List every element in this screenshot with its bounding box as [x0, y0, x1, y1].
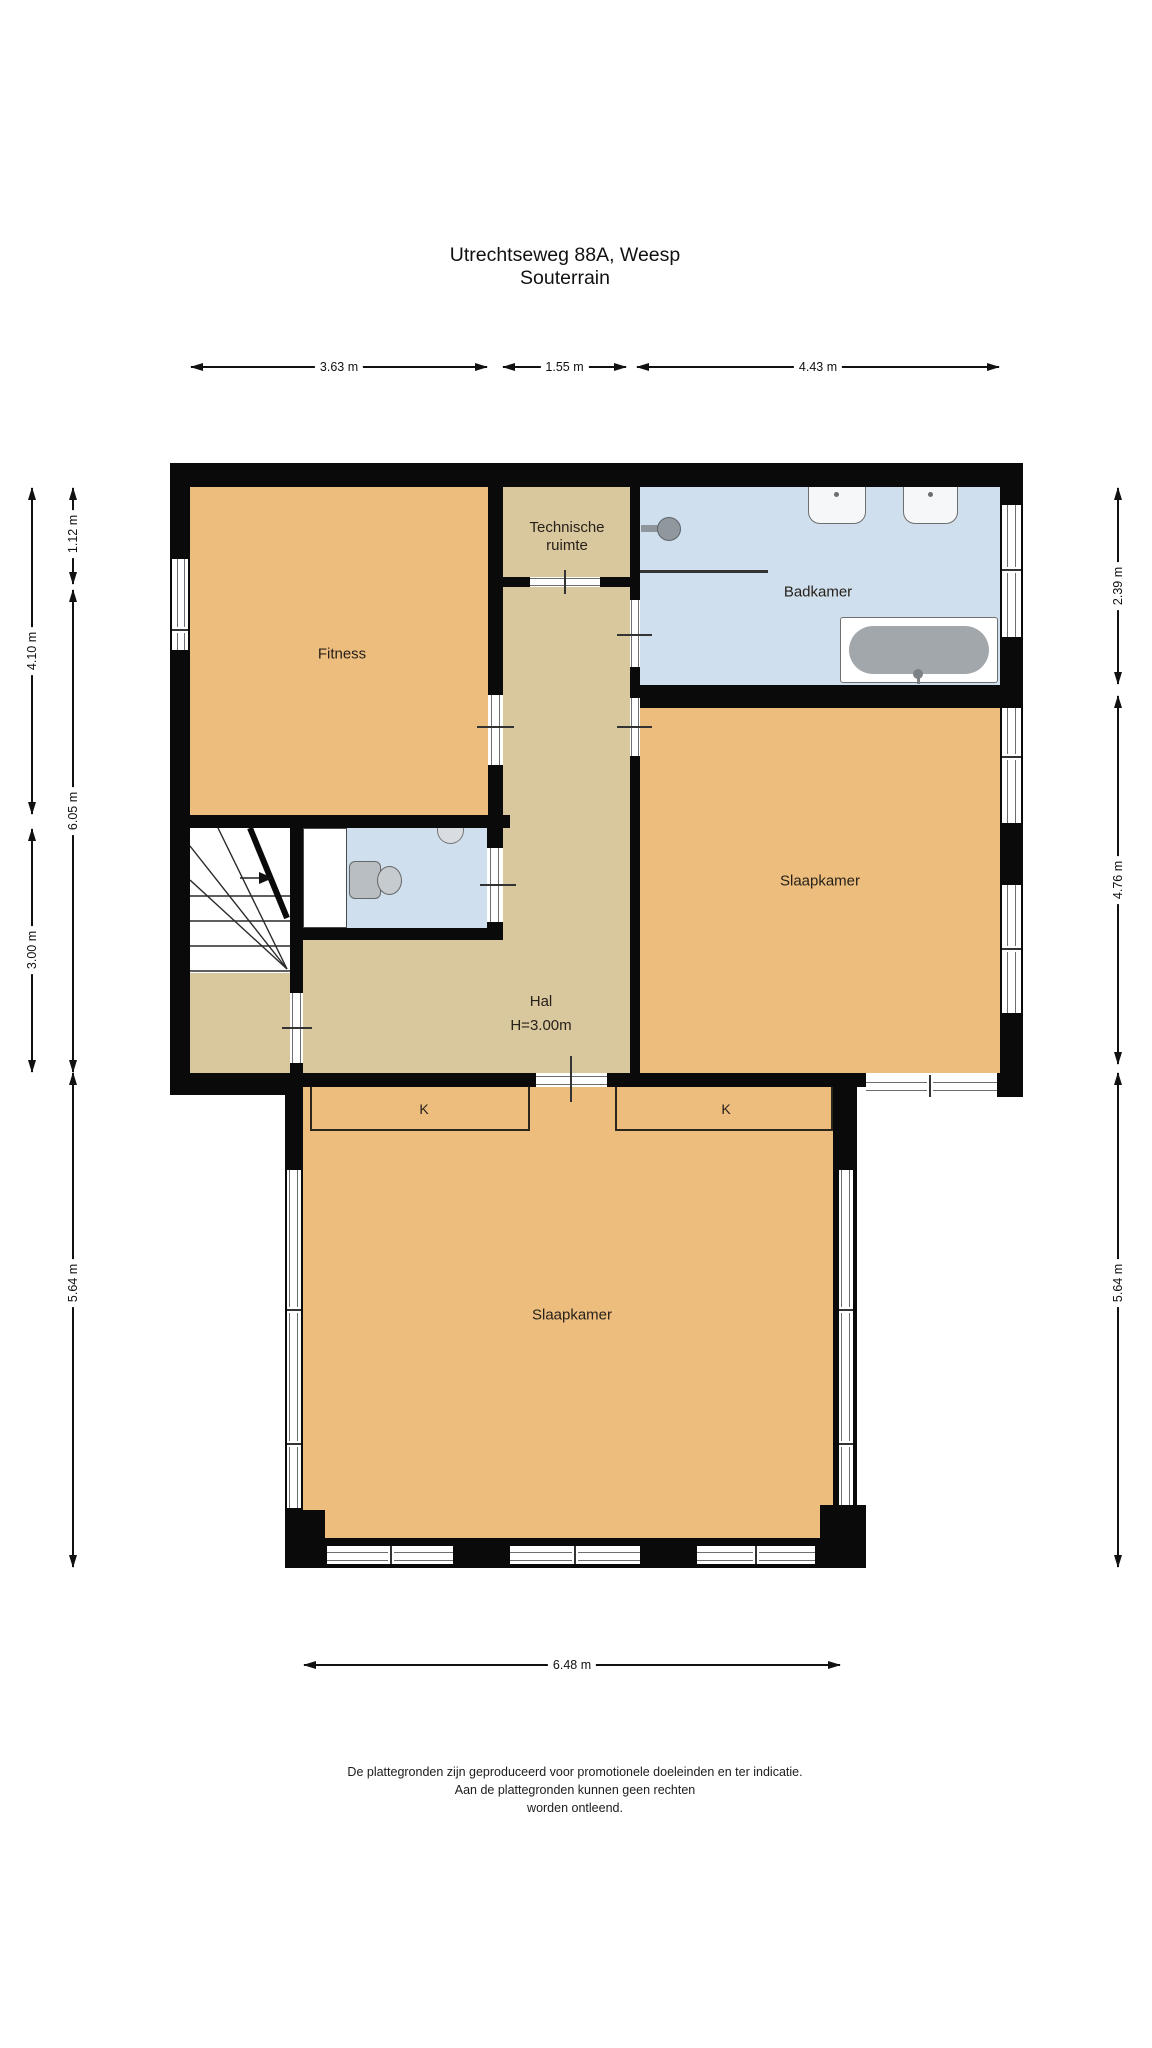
door-tick: [570, 1056, 572, 1102]
window-divider: [287, 1441, 301, 1447]
room-hal-lower: [303, 940, 630, 1073]
floorplan: Utrechtseweg 88A, Weesp Souterrain: [0, 0, 1152, 2048]
dimension-left-inner-1: 1.12 m: [66, 487, 80, 585]
window-divider: [753, 1546, 759, 1564]
room-label-fitness: Fitness: [318, 646, 366, 663]
room-label-technische-ruimte: Technische ruimte: [529, 519, 604, 555]
dimension-value: 5.64 m: [66, 1259, 80, 1307]
wall: [170, 1073, 303, 1095]
disclaimer: De plattegronden zijn geproduceerd voor …: [347, 1763, 802, 1817]
dimension-top-1: 3.63 m: [190, 360, 488, 374]
door-tick: [480, 884, 516, 886]
dimension-value: 5.64 m: [1111, 1259, 1125, 1307]
dimension-top-2: 1.55 m: [502, 360, 627, 374]
window-divider: [572, 1546, 578, 1564]
dimension-right-1: 2.39 m: [1111, 487, 1125, 685]
closet-label-left: K: [419, 1101, 428, 1117]
dimension-left-outer-1: 4.10 m: [25, 487, 39, 815]
window-glass: [289, 1170, 298, 1508]
wall: [303, 928, 498, 940]
dimension-bottom-1: 6.48 m: [303, 1658, 841, 1672]
dimension-value: 4.10 m: [25, 627, 39, 675]
dimension-left-outer-2: 3.00 m: [25, 828, 39, 1073]
room-slaapkamer-boven: [640, 708, 1000, 1073]
window-divider: [839, 1307, 853, 1313]
wall: [640, 685, 1023, 708]
door-tick: [617, 726, 652, 728]
faucet-icon: [834, 492, 839, 497]
dimension-left-inner-2: 6.05 m: [66, 589, 80, 1073]
shower-partition: [640, 570, 768, 573]
bathtub-basin: [849, 626, 989, 674]
wall: [630, 487, 640, 1073]
stairs-icon: [190, 828, 290, 973]
floor-subtitle: Souterrain: [450, 267, 681, 290]
disclaimer-line: Aan de plattegronden kunnen geen rechten: [347, 1781, 802, 1799]
room-label-line: ruimte: [546, 537, 588, 554]
window-divider: [388, 1546, 394, 1564]
wall: [190, 815, 510, 828]
room-label-badkamer: Badkamer: [784, 584, 852, 601]
door-tick: [282, 1027, 312, 1029]
window-divider: [172, 627, 188, 633]
wall: [997, 1073, 1023, 1097]
bathtub-faucet-icon: [917, 677, 920, 684]
disclaimer-line: De plattegronden zijn geproduceerd voor …: [347, 1763, 802, 1781]
dimension-value: 4.43 m: [794, 360, 842, 374]
window-glass: [1007, 708, 1016, 823]
dimension-value: 6.48 m: [548, 1658, 596, 1672]
room-label-slaapkamer-boven: Slaapkamer: [780, 873, 860, 890]
window-divider: [1002, 754, 1021, 760]
dimension-value: 6.05 m: [66, 787, 80, 835]
shower-head-icon: [657, 517, 681, 541]
dimension-value: 4.76 m: [1111, 856, 1125, 904]
window-glass: [177, 559, 185, 650]
stairs-landing: [190, 973, 290, 1073]
window-divider: [1002, 567, 1021, 573]
dimension-value: 2.39 m: [1111, 562, 1125, 610]
ceiling-height-label: H=3.00m: [510, 1017, 571, 1034]
room-label-slaapkamer-beneden: Slaapkamer: [532, 1307, 612, 1324]
window-divider: [927, 1075, 933, 1097]
window-glass: [841, 1170, 850, 1505]
door-tick: [564, 570, 566, 594]
dimension-value: 3.63 m: [315, 360, 363, 374]
closet-label-right: K: [721, 1101, 730, 1117]
window-divider: [1002, 946, 1021, 952]
door-glass: [491, 695, 500, 765]
room-label-line: Hal: [530, 993, 553, 1010]
window-divider: [287, 1307, 301, 1313]
dimension-right-3: 5.64 m: [1111, 1072, 1125, 1568]
toilet-bowl-icon: [377, 866, 402, 895]
room-label-line: Technische: [529, 519, 604, 536]
dimension-value: 3.00 m: [25, 926, 39, 974]
door-tick: [617, 634, 652, 636]
wall: [488, 487, 503, 828]
closet: [303, 828, 347, 928]
faucet-icon: [928, 492, 933, 497]
dimension-right-2: 4.76 m: [1111, 695, 1125, 1065]
address-title: Utrechtseweg 88A, Weesp: [450, 244, 681, 267]
disclaimer-line: worden ontleend.: [347, 1799, 802, 1817]
dimension-value: 1.12 m: [66, 510, 80, 558]
door-tick: [477, 726, 514, 728]
page-title: Utrechtseweg 88A, Weesp Souterrain: [450, 244, 681, 290]
window-divider: [839, 1441, 853, 1447]
dimension-top-3: 4.43 m: [636, 360, 1000, 374]
dimension-left-inner-3: 5.64 m: [66, 1072, 80, 1568]
dimension-value: 1.55 m: [540, 360, 588, 374]
room-label-hal: Hal H=3.00m: [510, 990, 571, 1038]
wall: [170, 463, 1023, 487]
